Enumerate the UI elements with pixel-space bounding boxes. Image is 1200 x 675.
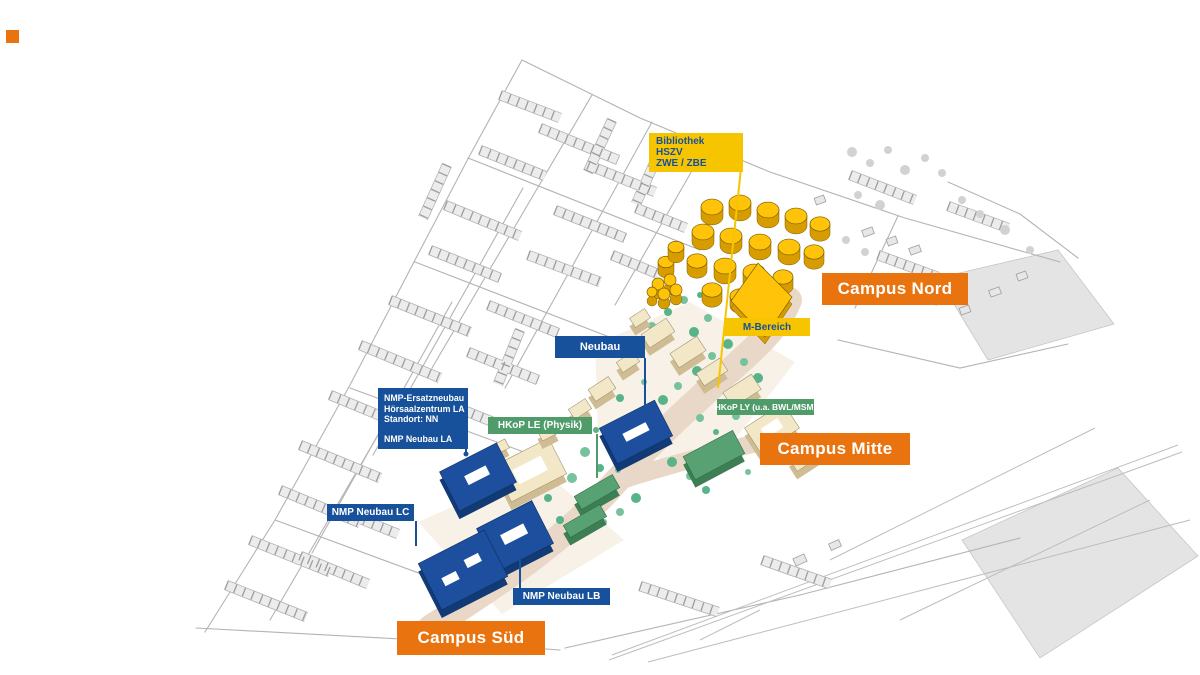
campus-sued-text: Campus Süd <box>418 628 525 648</box>
nmp-la-line1: NMP-Ersatzneubau <box>384 393 462 404</box>
campus-nord-label: Campus Nord <box>822 273 968 305</box>
bibliothek-line1: Bibliothek <box>656 136 736 147</box>
nmp-la-line3: Standort: NN <box>384 414 462 425</box>
campus-map-page: Bibliothek HSZV ZWE / ZBE M-Bereich Neub… <box>0 0 1200 675</box>
hkop-ly-label: HKoP LY (u.a. BWL/MSM) <box>717 399 814 415</box>
bibliothek-line2: HSZV <box>656 147 736 158</box>
m-bereich-text: M-Bereich <box>743 322 791 333</box>
hkop-ly-text: HKoP LY (u.a. BWL/MSM) <box>715 402 817 412</box>
nmp-la-gap <box>384 425 462 434</box>
campus-sued-label: Campus Süd <box>397 621 545 655</box>
nmp-la-label: NMP-Ersatzneubau Hörsaalzentrum LA Stand… <box>378 388 468 449</box>
hkop-le-text: HKoP LE (Physik) <box>498 420 582 431</box>
nmp-la-line4: NMP Neubau LA <box>384 434 462 445</box>
campus-mitte-text: Campus Mitte <box>777 439 892 459</box>
neubau-label: Neubau <box>555 336 645 358</box>
nmp-lc-label: NMP Neubau LC <box>327 504 414 521</box>
neubau-text: Neubau <box>580 341 620 353</box>
campus-mitte-label: Campus Mitte <box>760 433 910 465</box>
hkop-le-label: HKoP LE (Physik) <box>488 417 592 434</box>
m-bereich-label: M-Bereich <box>724 318 810 336</box>
nmp-lb-text: NMP Neubau LB <box>523 591 601 602</box>
campus-nord-text: Campus Nord <box>838 279 953 299</box>
nmp-la-line2: Hörsaalzentrum LA <box>384 404 462 415</box>
nmp-lc-text: NMP Neubau LC <box>332 507 410 518</box>
bibliothek-label: Bibliothek HSZV ZWE / ZBE <box>649 133 743 172</box>
bibliothek-line3: ZWE / ZBE <box>656 158 736 169</box>
nmp-lb-label: NMP Neubau LB <box>513 588 610 605</box>
